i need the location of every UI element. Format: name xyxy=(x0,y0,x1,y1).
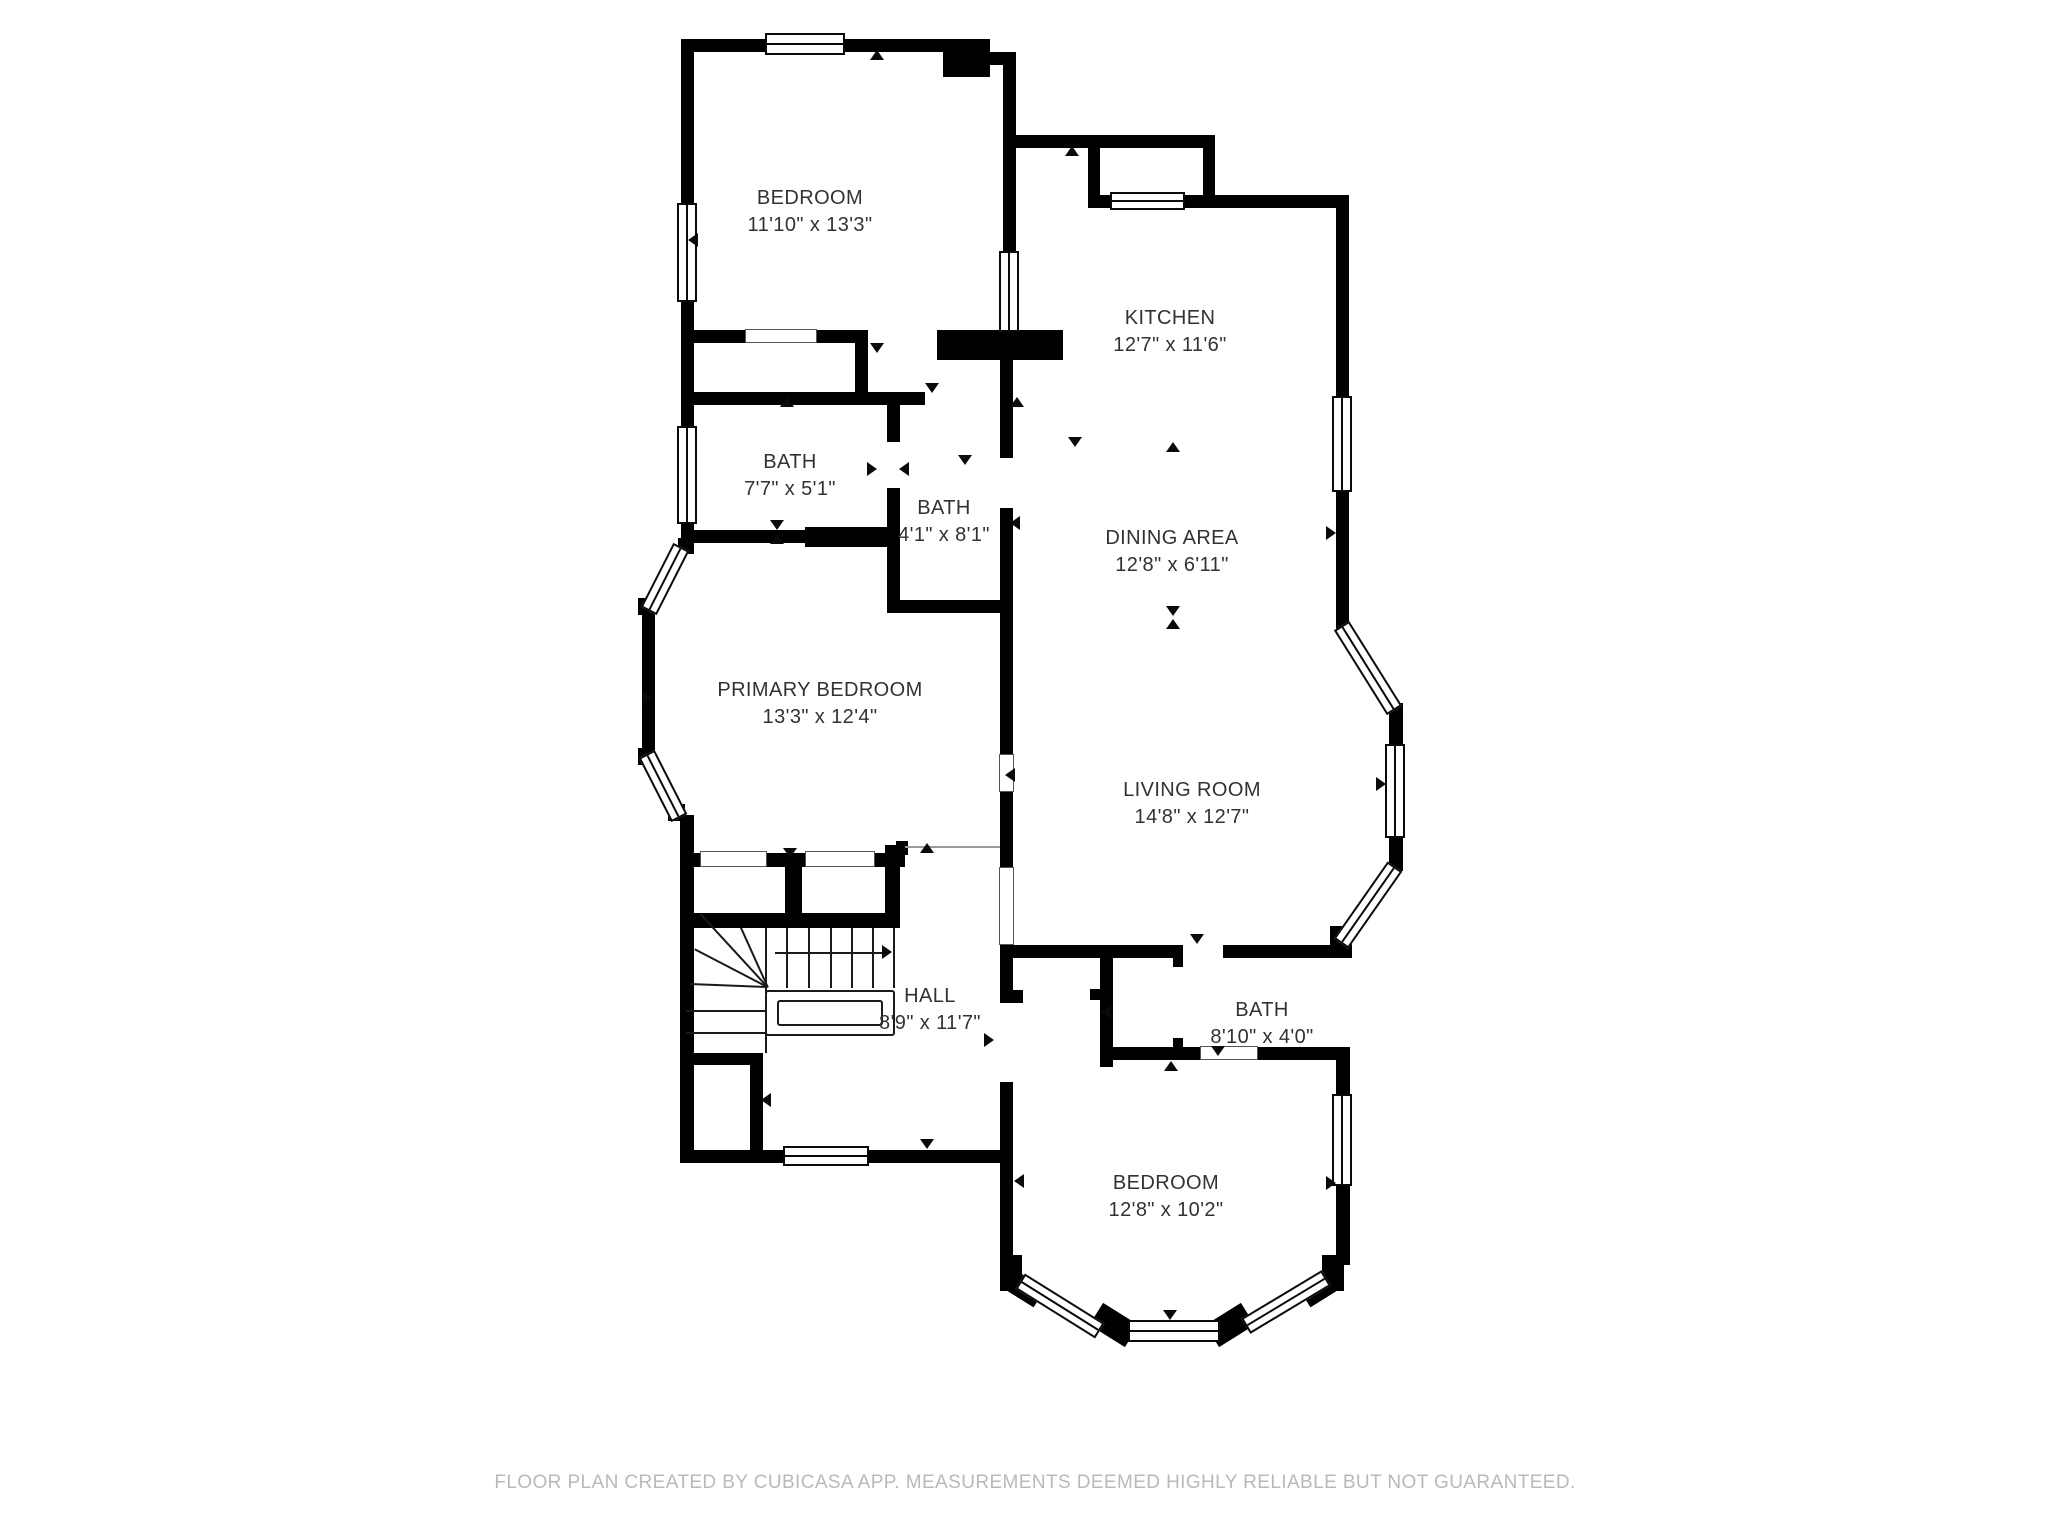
room-dimensions: 12'8" x 10'2" xyxy=(1109,1197,1224,1224)
direction-marker xyxy=(1068,437,1082,447)
wall-segment xyxy=(681,530,805,543)
room-name: BATH xyxy=(1210,997,1313,1024)
direction-marker xyxy=(1326,1176,1336,1190)
wall-segment xyxy=(694,913,900,928)
window xyxy=(783,1146,869,1166)
direction-marker xyxy=(1010,516,1020,530)
bay-window xyxy=(1334,621,1402,715)
room-name: BEDROOM xyxy=(1109,1170,1224,1197)
room-dimensions: 13'3" x 12'4" xyxy=(717,704,922,731)
wall-segment xyxy=(1100,1047,1200,1060)
direction-marker xyxy=(958,455,972,465)
window xyxy=(1385,744,1405,838)
wall-segment xyxy=(887,402,900,442)
window xyxy=(1128,1320,1220,1342)
window xyxy=(765,33,845,55)
wall-segment xyxy=(1001,945,1173,958)
stair-line xyxy=(690,983,767,988)
room-label-dining-area: DINING AREA12'8" x 6'11" xyxy=(1105,525,1238,579)
direction-marker xyxy=(1376,777,1386,791)
direction-marker xyxy=(780,397,794,407)
footer-disclaimer: FLOOR PLAN CREATED BY CUBICASA APP. MEAS… xyxy=(494,1472,1575,1494)
wall-segment xyxy=(1000,508,1013,754)
wall-segment xyxy=(680,845,694,1163)
direction-marker xyxy=(899,462,909,476)
sliding-door xyxy=(999,867,1014,945)
stair-line xyxy=(893,928,895,988)
window xyxy=(677,426,697,524)
wall-segment xyxy=(1000,1082,1013,1262)
room-label-hall: HALL8'9" x 11'7" xyxy=(879,983,981,1037)
room-name: KITCHEN xyxy=(1113,305,1226,332)
stair-direction-arrow xyxy=(882,945,892,959)
window xyxy=(1332,396,1352,492)
wall-segment xyxy=(1173,1038,1183,1048)
wall-segment xyxy=(1000,945,1013,1003)
direction-marker xyxy=(1010,397,1024,407)
room-name: BATH xyxy=(898,495,990,522)
room-label-bath-2: BATH4'1" x 8'1" xyxy=(898,495,990,549)
direction-marker xyxy=(920,843,934,853)
room-dimensions: 11'10" x 13'3" xyxy=(748,212,873,239)
sliding-door xyxy=(805,851,875,867)
direction-marker xyxy=(1166,619,1180,629)
room-label-bath-1: BATH7'7" x 5'1" xyxy=(744,449,836,503)
window-pane-line xyxy=(767,43,843,45)
direction-marker xyxy=(870,50,884,60)
direction-marker xyxy=(1065,146,1079,156)
wall-segment xyxy=(1223,945,1343,958)
room-label-bedroom-top: BEDROOM11'10" x 13'3" xyxy=(748,185,873,239)
window-pane-line xyxy=(1130,1330,1218,1332)
stair-line xyxy=(830,928,832,988)
window-pane-line xyxy=(647,755,680,816)
room-name: LIVING ROOM xyxy=(1123,777,1261,804)
direction-marker xyxy=(783,848,797,858)
wall-segment xyxy=(1016,135,1215,148)
window-pane-line xyxy=(1342,627,1395,709)
stair-railing-inner xyxy=(777,1000,883,1026)
window xyxy=(1110,192,1185,210)
room-name: BATH xyxy=(744,449,836,476)
direction-marker xyxy=(1005,768,1015,782)
window-pane-line xyxy=(1341,1096,1343,1184)
direction-marker xyxy=(688,233,698,247)
direction-marker xyxy=(1164,1061,1178,1071)
direction-marker xyxy=(867,462,877,476)
direction-marker xyxy=(870,343,884,353)
window xyxy=(1332,1094,1352,1186)
window-pane-line xyxy=(686,205,688,300)
stair-line xyxy=(872,928,874,988)
wall-segment xyxy=(1336,1180,1350,1265)
floor-plan-page: BEDROOM11'10" x 13'3"KITCHEN12'7" x 11'6… xyxy=(0,0,2048,1536)
wall-segment xyxy=(785,867,802,915)
direction-marker xyxy=(1166,606,1180,616)
room-name: DINING AREA xyxy=(1105,525,1238,552)
window-pane-line xyxy=(686,428,688,522)
direction-marker xyxy=(770,534,784,544)
wall-segment xyxy=(1003,52,1016,253)
sliding-door xyxy=(745,329,817,343)
sliding-door xyxy=(700,851,767,867)
window-pane-line xyxy=(1394,746,1396,836)
direction-marker xyxy=(1014,1174,1024,1188)
room-dimensions: 8'10" x 4'0" xyxy=(1210,1024,1313,1051)
room-name: PRIMARY BEDROOM xyxy=(717,677,922,704)
direction-marker xyxy=(643,691,653,705)
window-pane-line xyxy=(1112,200,1183,202)
bay-window xyxy=(641,543,690,615)
bay-window xyxy=(639,750,688,822)
direction-marker xyxy=(770,520,784,530)
direction-marker xyxy=(1163,1310,1177,1320)
room-name: BEDROOM xyxy=(748,185,873,212)
wall-segment xyxy=(1000,358,1013,458)
wall-segment xyxy=(937,330,1063,360)
room-label-primary-bedroom: PRIMARY BEDROOM13'3" x 12'4" xyxy=(717,677,922,731)
stair-line xyxy=(694,948,768,988)
room-dimensions: 4'1" x 8'1" xyxy=(898,522,990,549)
stair-line xyxy=(775,952,884,954)
direction-marker xyxy=(1190,934,1204,944)
stair-line xyxy=(686,1010,767,1012)
wall-segment xyxy=(887,600,1013,613)
direction-marker xyxy=(1166,442,1180,452)
window-pane-line xyxy=(1341,398,1343,490)
wall-segment xyxy=(1173,945,1183,967)
window-pane-line xyxy=(1008,253,1010,330)
window xyxy=(677,203,697,302)
window-pane-line xyxy=(1341,868,1394,943)
direction-marker xyxy=(1326,526,1336,540)
stair-line xyxy=(686,1032,767,1034)
wall-segment xyxy=(694,330,745,343)
room-name: HALL xyxy=(879,983,981,1010)
wall-segment xyxy=(1013,990,1023,1003)
wall-segment xyxy=(1000,792,1013,869)
room-label-living-room: LIVING ROOM14'8" x 12'7" xyxy=(1123,777,1261,831)
room-dimensions: 7'7" x 5'1" xyxy=(744,476,836,503)
window-pane-line xyxy=(649,548,682,609)
room-dimensions: 12'7" x 11'6" xyxy=(1113,332,1226,359)
wall-segment xyxy=(642,608,655,758)
bay-window xyxy=(1015,1273,1104,1338)
room-label-bedroom-bottom: BEDROOM12'8" x 10'2" xyxy=(1109,1170,1224,1224)
stair-line xyxy=(851,928,853,988)
wall-segment xyxy=(1090,989,1101,1000)
direction-marker xyxy=(761,1093,771,1107)
stair-line xyxy=(786,928,788,988)
stair-line xyxy=(808,928,810,988)
wall-segment xyxy=(805,527,888,547)
room-label-kitchen: KITCHEN12'7" x 11'6" xyxy=(1113,305,1226,359)
room-dimensions: 8'9" x 11'7" xyxy=(879,1010,981,1037)
window-pane-line xyxy=(785,1155,867,1157)
direction-marker xyxy=(925,383,939,393)
room-dimensions: 12'8" x 6'11" xyxy=(1105,552,1238,579)
direction-marker xyxy=(1101,1005,1111,1019)
room-label-bath-3: BATH8'10" x 4'0" xyxy=(1210,997,1313,1051)
window xyxy=(999,251,1019,332)
direction-marker xyxy=(920,1139,934,1149)
direction-marker xyxy=(984,1033,994,1047)
room-dimensions: 14'8" x 12'7" xyxy=(1123,804,1261,831)
bay-window xyxy=(1334,861,1403,948)
